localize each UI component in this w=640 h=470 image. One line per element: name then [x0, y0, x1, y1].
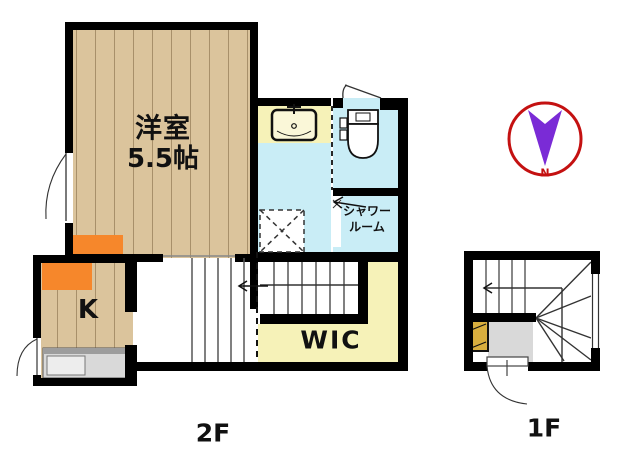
western-room-label: 洋室	[135, 116, 191, 143]
washbasin-icon	[272, 104, 316, 140]
stairs-2f-lower-flight	[192, 258, 244, 362]
compass-north-label: N	[540, 168, 549, 179]
stairs-2f-upper-flight	[260, 262, 358, 314]
shower-unit-dashed-square	[260, 210, 304, 252]
western-room-size-label: 5.5帖	[127, 146, 199, 172]
compass-icon	[509, 103, 581, 175]
window-1f	[591, 274, 600, 348]
kitchen-door-arc	[17, 338, 41, 376]
kitchen-counter-orange	[42, 263, 92, 290]
kitchen-label: K	[78, 297, 98, 323]
counter-orange-western-room	[67, 235, 123, 254]
entrance-genkan-floor	[488, 322, 533, 362]
floor-1f-title: 1F	[527, 416, 561, 441]
toilet-door-arc	[343, 85, 381, 98]
kitchen-sink-counter	[43, 348, 127, 378]
floor-plan-page: 洋室 5.5帖 K WIC シャワー ルーム 2F 1F N	[0, 0, 640, 470]
entrance-door-arc	[487, 357, 528, 404]
western-room-door-arc	[46, 153, 73, 223]
shower-room-label-line2: ルーム	[349, 221, 385, 233]
floor-2f-title: 2F	[196, 421, 230, 446]
shower-room-label-line1: シャワー	[343, 205, 391, 217]
wic-label: WIC	[300, 328, 361, 353]
floor-plan-drawing	[0, 0, 640, 470]
